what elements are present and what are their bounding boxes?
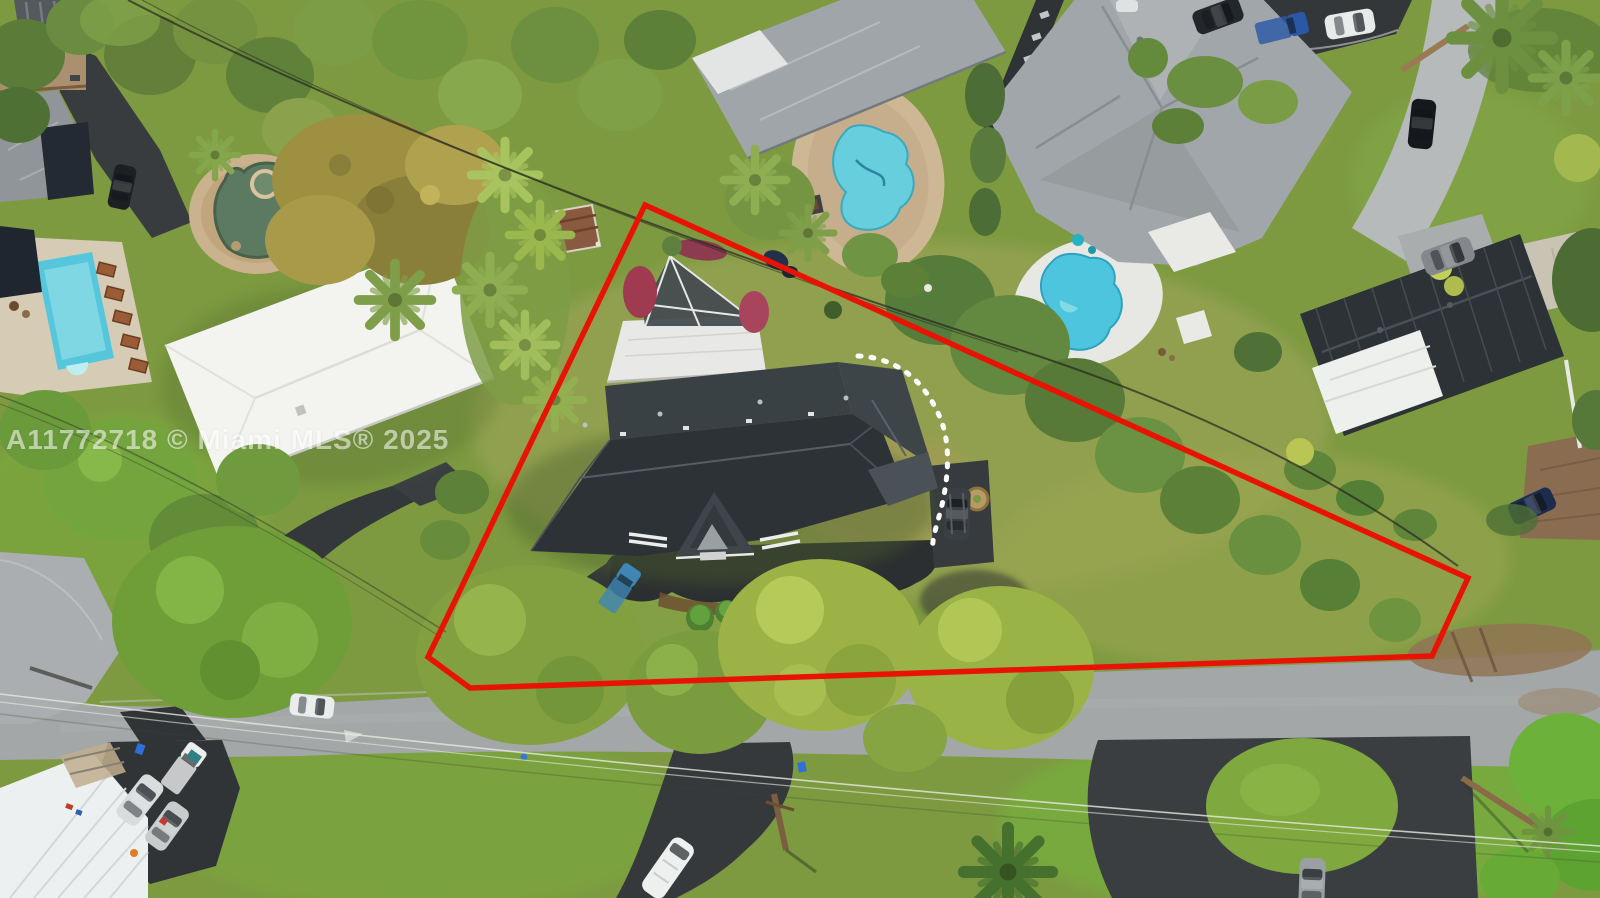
yellow-shrub: [1554, 134, 1600, 182]
aerial-photo: A11772718 © Miami MLS® 2025: [0, 0, 1600, 898]
aerial-scene: [0, 0, 1600, 898]
gray-sedan-loop: [1298, 858, 1326, 898]
white-car-top: [1116, 0, 1138, 12]
subject-parked-suv: [943, 488, 971, 541]
worker-orange-vest: [130, 849, 138, 857]
white-car-on-road: [289, 693, 335, 720]
small-bush: [824, 301, 842, 319]
black-sedan-right: [1407, 98, 1437, 150]
blue-bin-2: [797, 761, 807, 772]
